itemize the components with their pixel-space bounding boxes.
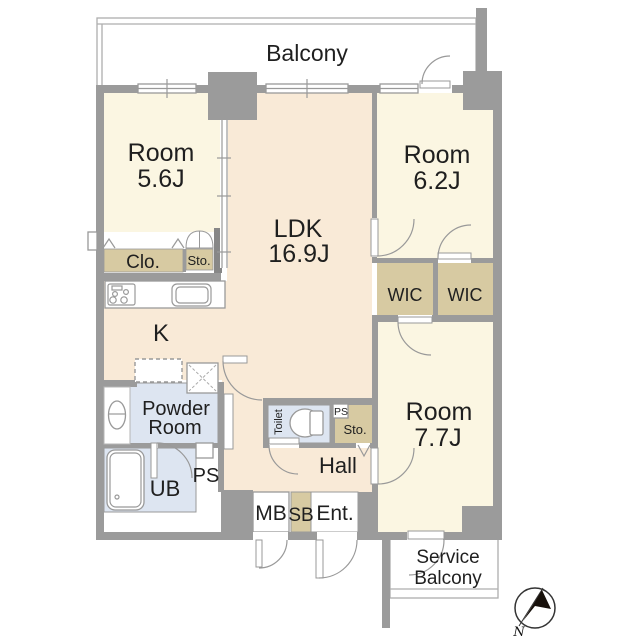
meter-box-door xyxy=(256,540,287,568)
pillar xyxy=(463,71,502,110)
floor-plan-drawing: N Balcony Room 5.6J LDK 16.9J Room 6.2J … xyxy=(0,0,640,640)
wall-niche xyxy=(88,232,97,250)
room-7-7-size: 7.7J xyxy=(414,424,461,452)
compass: N xyxy=(512,588,555,640)
floor-plan: N Balcony Room 5.6J LDK 16.9J Room 6.2J … xyxy=(0,0,640,640)
room-6-2-size: 6.2J xyxy=(413,167,460,195)
front-door xyxy=(316,540,357,578)
kitchen-counter xyxy=(105,281,225,308)
window xyxy=(380,84,418,93)
ldk-size: 16.9J xyxy=(268,240,329,268)
refrigerator-space xyxy=(135,359,182,382)
balcony-door xyxy=(420,56,450,88)
toilet-label: Toilet xyxy=(273,409,285,435)
pipe-shaft-box xyxy=(196,443,213,458)
pillar xyxy=(208,72,257,120)
room-5-6-size: 5.6J xyxy=(137,165,184,193)
compass-north-label: N xyxy=(512,625,525,640)
wash-basin xyxy=(104,387,130,444)
shoe-box-label: SB xyxy=(288,505,313,526)
balcony-label: Balcony xyxy=(266,40,348,66)
powder-room-label-2: Room xyxy=(148,417,201,439)
service-balcony-label-2: Balcony xyxy=(414,568,482,589)
bathroom-label: UB xyxy=(150,476,181,501)
room-6-2-label: Room xyxy=(404,141,471,169)
ps-large-label: PS xyxy=(193,465,220,487)
meter-box-label: MB xyxy=(255,502,287,525)
wic-left-label: WIC xyxy=(388,285,423,305)
storage-upper-label: Sto. xyxy=(187,253,210,268)
service-balcony-label-1: Service xyxy=(416,547,479,568)
room-5-6-label: Room xyxy=(128,139,195,167)
washer-space xyxy=(187,363,218,393)
entrance-label: Ent. xyxy=(316,502,353,525)
wic-right-label: WIC xyxy=(448,285,483,305)
powder-room-door xyxy=(224,394,233,449)
hall-label: Hall xyxy=(319,453,357,478)
closet-label: Clo. xyxy=(126,252,160,273)
storage-lower-label: Sto. xyxy=(343,422,366,437)
bathtub xyxy=(107,450,144,510)
toilet-icon xyxy=(290,409,323,437)
room-7-7-label: Room xyxy=(406,398,473,426)
ps-small-label: PS xyxy=(334,406,348,418)
ldk-label: LDK xyxy=(274,215,323,243)
kitchen-label: K xyxy=(153,320,169,347)
